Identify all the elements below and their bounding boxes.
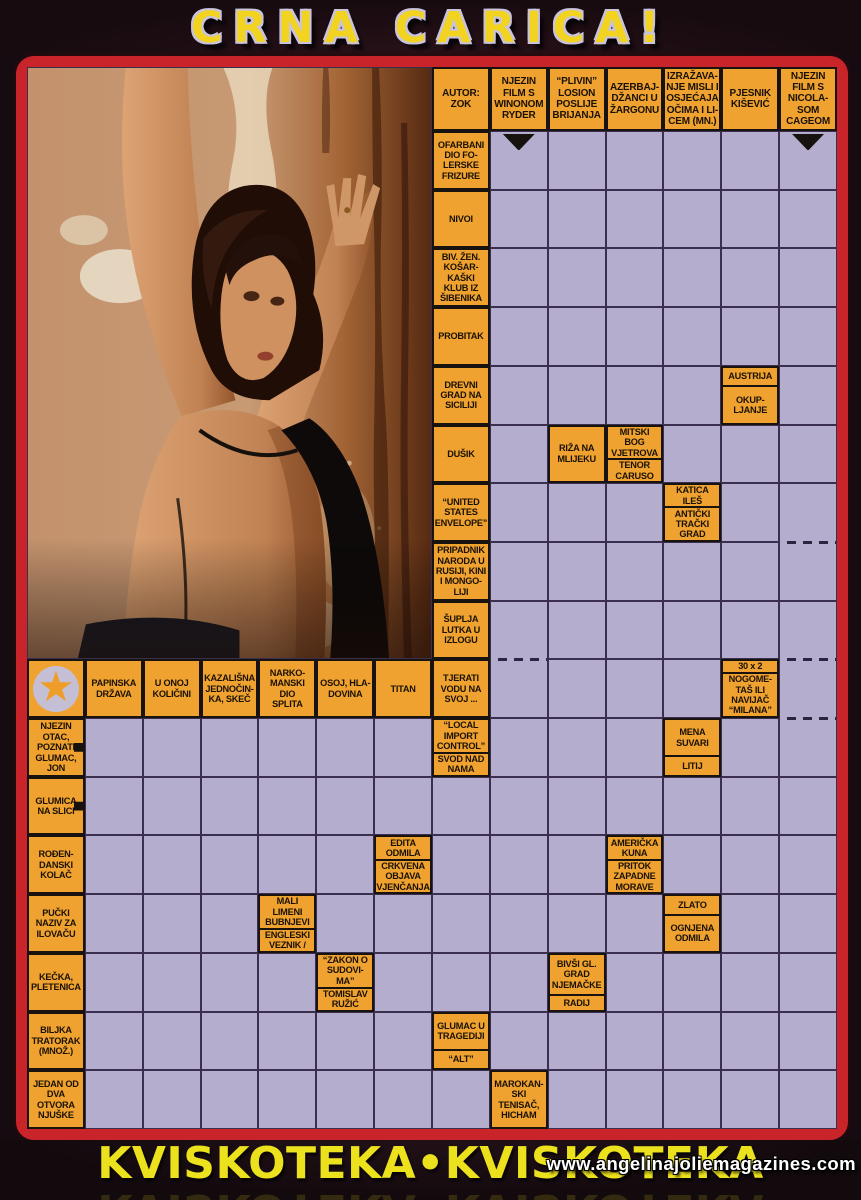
answer-cell <box>663 248 721 307</box>
answer-cell <box>606 248 664 307</box>
answer-cell <box>258 1012 316 1071</box>
answer-cell <box>85 777 143 836</box>
clue-cell: PROBITAK <box>432 307 490 366</box>
clue-text: KATICA ILEŠ <box>665 485 719 506</box>
answer-cell <box>490 190 548 249</box>
answer-cell <box>85 718 143 777</box>
answer-cell <box>606 894 664 953</box>
clue-text: DREVNI GRAD NA SICILIJI <box>434 368 488 423</box>
answer-cell <box>779 601 837 660</box>
clue-text: PROBITAK <box>434 309 488 364</box>
star-circle: ★ <box>33 666 79 712</box>
clue-text: TOMISLAV RUŽIĆ <box>318 987 372 1010</box>
watermark: www.angelinajoliemagazines.com <box>547 1153 856 1175</box>
clue-text: U ONOJ KOLIČINI <box>145 661 199 716</box>
answer-cell <box>779 542 837 601</box>
answer-cell <box>201 1070 259 1129</box>
answer-cell <box>779 659 837 718</box>
clue-cell: NJEZIN FILM S WINONOM RYDER <box>490 67 548 131</box>
answer-cell <box>201 1012 259 1071</box>
answer-cell <box>490 483 548 542</box>
answer-cell <box>779 1012 837 1071</box>
clue-text: BILJKA TRATORAK (MNOŽ.) <box>29 1014 83 1069</box>
clue-cell: “ZAKON O SUDOVI- MA”TOMISLAV RUŽIĆ <box>316 953 374 1012</box>
answer-cell <box>606 601 664 660</box>
answer-cell <box>663 777 721 836</box>
answer-cell <box>258 777 316 836</box>
clue-text: PUČKI NAZIV ZA ILOVAČU <box>29 896 83 951</box>
clue-cell: DUŠIK <box>432 425 490 484</box>
answer-cell <box>606 718 664 777</box>
clue-text: NARKO- MANSKI DIO SPLITA <box>260 661 314 716</box>
clue-cell: KATICA ILEŠANTIČKI TRAČKI GRAD <box>663 483 721 542</box>
answer-cell <box>490 894 548 953</box>
answer-cell <box>201 718 259 777</box>
answer-cell <box>490 131 548 190</box>
answer-cell <box>606 542 664 601</box>
bottom-banner: KVISKOTEKA•KVISKOTEKA KVISKOTEKA•KVISKOT… <box>0 1140 861 1200</box>
answer-cell <box>721 248 779 307</box>
answer-cell <box>374 894 432 953</box>
answer-cell <box>779 366 837 425</box>
clue-cell: BIV. ŽEN. KOŠAR- KAŠKI KLUB IZ ŠIBENIKA <box>432 248 490 307</box>
clue-cell: NJEZIN OTAC, POZNATI GLUMAC, JON <box>27 718 85 777</box>
answer-cell <box>143 777 201 836</box>
clue-text: NJEZIN FILM S NICOLA- SOM CAGEOM <box>781 69 835 129</box>
answer-cell <box>721 894 779 953</box>
clue-text: NIVOI <box>434 192 488 247</box>
clue-cell: “UNITED STATES ENVELOPE” <box>432 483 490 542</box>
clue-text: AZERBAJ- DŽANCI U ŽARGONU <box>608 69 662 129</box>
answer-cell <box>85 953 143 1012</box>
answer-cell <box>779 777 837 836</box>
answer-cell <box>143 953 201 1012</box>
answer-cell <box>316 777 374 836</box>
clue-cell: OSOJ, HLA- DOVINA <box>316 659 374 718</box>
clue-text: OGNJENA ODMILA <box>665 914 719 951</box>
answer-cell <box>663 1012 721 1071</box>
clue-text: RADIJ <box>550 994 604 1009</box>
clue-text: PRITOK ZAPADNE MORAVE <box>608 859 662 893</box>
answer-cell <box>779 1070 837 1129</box>
answer-cell <box>721 601 779 660</box>
clue-cell: GLUMICA NA SLICI <box>27 777 85 836</box>
answer-cell <box>779 131 837 190</box>
answer-cell <box>490 307 548 366</box>
answer-cell <box>548 190 606 249</box>
answer-cell <box>721 425 779 484</box>
answer-cell <box>258 953 316 1012</box>
answer-cell <box>663 1070 721 1129</box>
clue-text: GLUMAC U TRAGEDIJI <box>434 1014 488 1049</box>
answer-cell <box>721 718 779 777</box>
dashed-grid-mark <box>780 717 836 720</box>
answer-cell <box>721 483 779 542</box>
clue-cell: AUSTRIJAOKUP- LJANJE <box>721 366 779 425</box>
arrow-down-icon <box>792 134 824 150</box>
answer-cell <box>606 953 664 1012</box>
crossword-grid: AUTOR: ZOKNJEZIN FILM S WINONOM RYDER“PL… <box>27 67 837 1129</box>
clue-text: “ZAKON O SUDOVI- MA” <box>318 955 372 987</box>
clue-cell: “PLIVIN” LOSION POSLIJE BRIJANJA <box>548 67 606 131</box>
answer-cell <box>432 835 490 894</box>
clue-text: MAROKAN- SKI TENISAČ, HICHAM <box>492 1072 546 1127</box>
answer-cell <box>490 425 548 484</box>
clue-cell: NARKO- MANSKI DIO SPLITA <box>258 659 316 718</box>
magazine-page: CRNA CARICA! <box>0 0 861 1200</box>
answer-cell <box>316 1012 374 1071</box>
answer-cell <box>490 366 548 425</box>
answer-cell <box>201 953 259 1012</box>
answer-cell <box>316 894 374 953</box>
answer-cell <box>548 718 606 777</box>
clue-text: OKUP- LJANJE <box>723 385 777 422</box>
answer-cell <box>606 131 664 190</box>
clue-text: KEČKA, PLETENICA <box>29 955 83 1010</box>
clue-text: TENOR CARUSO <box>608 458 662 481</box>
star-cell: ★ <box>27 659 85 718</box>
clue-text: BIV. ŽEN. KOŠAR- KAŠKI KLUB IZ ŠIBENIKA <box>434 250 488 305</box>
answer-cell <box>721 1070 779 1129</box>
clue-text: JEDAN OD DVA OTVORA NJUŠKE <box>29 1072 83 1127</box>
answer-cell <box>143 1070 201 1129</box>
clue-text: “UNITED STATES ENVELOPE” <box>434 485 488 540</box>
answer-cell <box>606 190 664 249</box>
answer-cell <box>606 483 664 542</box>
answer-cell <box>258 718 316 777</box>
answer-cell <box>606 1012 664 1071</box>
answer-cell <box>490 953 548 1012</box>
answer-cell <box>432 777 490 836</box>
clue-cell: PJESNIK KIŠEVIĆ <box>721 67 779 131</box>
answer-cell <box>721 835 779 894</box>
clue-cell: MALI LIMENI BUBNJEVIENGLESKI VEZNIK / <box>258 894 316 953</box>
clue-cell: IZRAŽAVA- NJE MISLI I OSJEĆAJA OČIMA I L… <box>663 67 721 131</box>
clue-text: MALI LIMENI BUBNJEVI <box>260 896 314 928</box>
clue-cell: ROĐEN- DANSKI KOLAČ <box>27 835 85 894</box>
clue-text: IZRAŽAVA- NJE MISLI I OSJEĆAJA OČIMA I L… <box>665 69 719 129</box>
clue-text: MENA SUVARI <box>665 720 719 755</box>
answer-cell <box>548 894 606 953</box>
answer-cell <box>779 425 837 484</box>
clue-text: AUSTRIJA <box>723 368 777 386</box>
answer-cell <box>606 366 664 425</box>
clue-cell: TJERATI VODU NA SVOJ ... <box>432 659 490 718</box>
answer-cell <box>201 894 259 953</box>
clue-text: EDITA ODMILA <box>376 837 430 858</box>
clue-text: TJERATI VODU NA SVOJ ... <box>434 661 488 716</box>
clue-cell: NIVOI <box>432 190 490 249</box>
answer-cell <box>490 1012 548 1071</box>
answer-cell <box>85 835 143 894</box>
answer-cell <box>85 1012 143 1071</box>
clue-text: NOGOME- TAŠ ILI NAVIJAČ “MILANA” <box>723 672 777 716</box>
clue-text: 30 x 2 <box>723 661 777 672</box>
clue-text: MITSKI BOG VJETROVA <box>608 427 662 459</box>
answer-cell <box>548 601 606 660</box>
clue-text: PJESNIK KIŠEVIĆ <box>723 69 777 129</box>
clue-cell: PAPINSKA DRŽAVA <box>85 659 143 718</box>
answer-cell <box>490 718 548 777</box>
answer-cell <box>663 953 721 1012</box>
clue-cell: OFARBANI DIO FO- LERSKE FRIZURE <box>432 131 490 190</box>
clue-text: KAZALIŠNA JEDNOČIN- KA, SKEČ <box>203 661 257 716</box>
answer-cell <box>374 1012 432 1071</box>
clue-text: BIVŠI GL. GRAD NJEMAČKE <box>550 955 604 995</box>
clue-cell: EDITA ODMILACRKVENA OBJAVA VJENČANJA <box>374 835 432 894</box>
clue-text: “ALT” <box>434 1049 488 1069</box>
answer-cell <box>548 366 606 425</box>
answer-cell <box>663 190 721 249</box>
photo-angelina <box>27 67 432 659</box>
clue-text: OFARBANI DIO FO- LERSKE FRIZURE <box>434 133 488 188</box>
answer-cell <box>316 718 374 777</box>
answer-cell <box>663 835 721 894</box>
answer-cell <box>201 777 259 836</box>
clue-cell: MITSKI BOG VJETROVATENOR CARUSO <box>606 425 664 484</box>
clue-text: CRKVENA OBJAVA VJENČANJA <box>376 859 430 893</box>
clue-text: ENGLESKI VEZNIK / <box>260 928 314 951</box>
answer-cell <box>779 483 837 542</box>
clue-cell: GLUMAC U TRAGEDIJI“ALT” <box>432 1012 490 1071</box>
answer-cell <box>316 835 374 894</box>
clue-text: “PLIVIN” LOSION POSLIJE BRIJANJA <box>550 69 604 129</box>
answer-cell <box>779 718 837 777</box>
clue-cell: BILJKA TRATORAK (MNOŽ.) <box>27 1012 85 1071</box>
clue-text: ANTIČKI TRAČKI GRAD <box>665 506 719 540</box>
answer-cell <box>374 777 432 836</box>
clue-text: DUŠIK <box>434 427 488 482</box>
clue-cell: AUTOR: ZOK <box>432 67 490 131</box>
clue-cell: PUČKI NAZIV ZA ILOVAČU <box>27 894 85 953</box>
photo-illustration <box>28 68 431 658</box>
clue-cell: U ONOJ KOLIČINI <box>143 659 201 718</box>
answer-cell <box>663 659 721 718</box>
clue-cell: BIVŠI GL. GRAD NJEMAČKERADIJ <box>548 953 606 1012</box>
answer-cell <box>201 835 259 894</box>
clue-text: PAPINSKA DRŽAVA <box>87 661 141 716</box>
answer-cell <box>548 248 606 307</box>
clue-text: LITIJ <box>665 755 719 775</box>
clue-cell: AMERIČKA KUNAPRITOK ZAPADNE MORAVE <box>606 835 664 894</box>
clue-cell: KAZALIŠNA JEDNOČIN- KA, SKEČ <box>201 659 259 718</box>
answer-cell <box>490 835 548 894</box>
answer-cell <box>490 248 548 307</box>
answer-cell <box>721 777 779 836</box>
clue-cell: ŠUPLJA LUTKA U IZLOGU <box>432 601 490 660</box>
clue-text: AMERIČKA KUNA <box>608 837 662 858</box>
answer-cell <box>779 894 837 953</box>
clue-text: ŠUPLJA LUTKA U IZLOGU <box>434 603 488 658</box>
answer-cell <box>721 190 779 249</box>
answer-cell <box>779 307 837 366</box>
clue-cell: RIŽA NA MLIJEKU <box>548 425 606 484</box>
answer-cell <box>548 131 606 190</box>
answer-cell <box>663 307 721 366</box>
clue-text: ROĐEN- DANSKI KOLAČ <box>29 837 83 892</box>
clue-cell: JEDAN OD DVA OTVORA NJUŠKE <box>27 1070 85 1129</box>
answer-cell <box>779 835 837 894</box>
answer-cell <box>432 953 490 1012</box>
star-icon: ★ <box>37 666 75 708</box>
answer-cell <box>374 1070 432 1129</box>
dashed-grid-mark <box>491 658 547 661</box>
answer-cell <box>663 601 721 660</box>
answer-cell <box>721 542 779 601</box>
arrow-down-icon <box>503 134 535 150</box>
answer-cell <box>721 1012 779 1071</box>
answer-cell <box>258 1070 316 1129</box>
answer-cell <box>779 248 837 307</box>
answer-cell <box>548 835 606 894</box>
page-title: CRNA CARICA! <box>191 3 670 53</box>
top-banner: CRNA CARICA! <box>0 0 861 56</box>
clue-text: TITAN <box>376 661 430 716</box>
answer-cell <box>606 307 664 366</box>
answer-cell <box>721 307 779 366</box>
answer-cell <box>316 1070 374 1129</box>
answer-cell <box>548 1070 606 1129</box>
answer-cell <box>85 894 143 953</box>
answer-cell <box>548 659 606 718</box>
clue-cell: NJEZIN FILM S NICOLA- SOM CAGEOM <box>779 67 837 131</box>
clue-text: OSOJ, HLA- DOVINA <box>318 661 372 716</box>
clue-text: AUTOR: ZOK <box>434 69 488 129</box>
clue-cell: “LOCAL IMPORT CONTROL”SVOD NAD NAMA <box>432 718 490 777</box>
answer-cell <box>779 953 837 1012</box>
answer-cell <box>548 483 606 542</box>
answer-cell <box>490 542 548 601</box>
clue-cell: MAROKAN- SKI TENISAČ, HICHAM <box>490 1070 548 1129</box>
clue-text: “LOCAL IMPORT CONTROL” <box>434 720 488 752</box>
clue-text: ZLATO <box>665 896 719 914</box>
clue-text: RIŽA NA MLIJEKU <box>550 427 604 482</box>
answer-cell <box>606 777 664 836</box>
dashed-grid-mark <box>780 658 836 661</box>
clue-cell: MENA SUVARILITIJ <box>663 718 721 777</box>
answer-cell <box>143 835 201 894</box>
answer-cell <box>548 777 606 836</box>
clue-cell: DREVNI GRAD NA SICILIJI <box>432 366 490 425</box>
answer-cell <box>663 366 721 425</box>
clue-cell: AZERBAJ- DŽANCI U ŽARGONU <box>606 67 664 131</box>
answer-cell <box>779 190 837 249</box>
answer-cell <box>606 1070 664 1129</box>
clue-cell: TITAN <box>374 659 432 718</box>
clue-text: NJEZIN FILM S WINONOM RYDER <box>492 69 546 129</box>
clue-text: SVOD NAD NAMA <box>434 752 488 775</box>
answer-cell <box>606 659 664 718</box>
answer-cell <box>548 307 606 366</box>
answer-cell <box>721 131 779 190</box>
answer-cell <box>490 777 548 836</box>
clue-text: PRIPADNIK NARODA U RUSIJI, KINI I MONGO-… <box>434 544 488 599</box>
clue-cell: ZLATOOGNJENA ODMILA <box>663 894 721 953</box>
dashed-grid-mark <box>780 541 836 544</box>
clue-cell: PRIPADNIK NARODA U RUSIJI, KINI I MONGO-… <box>432 542 490 601</box>
answer-cell <box>85 1070 143 1129</box>
answer-cell <box>663 131 721 190</box>
answer-cell <box>143 894 201 953</box>
answer-cell <box>432 1070 490 1129</box>
answer-cell <box>258 835 316 894</box>
clue-cell: 30 x 2NOGOME- TAŠ ILI NAVIJAČ “MILANA” <box>721 659 779 718</box>
answer-cell <box>721 953 779 1012</box>
answer-cell <box>663 542 721 601</box>
answer-cell <box>490 601 548 660</box>
answer-cell <box>143 718 201 777</box>
answer-cell <box>548 542 606 601</box>
answer-cell <box>143 1012 201 1071</box>
answer-cell <box>663 425 721 484</box>
answer-cell <box>374 953 432 1012</box>
answer-cell <box>490 659 548 718</box>
answer-cell <box>432 894 490 953</box>
answer-cell <box>548 1012 606 1071</box>
clue-cell: KEČKA, PLETENICA <box>27 953 85 1012</box>
answer-cell <box>374 718 432 777</box>
